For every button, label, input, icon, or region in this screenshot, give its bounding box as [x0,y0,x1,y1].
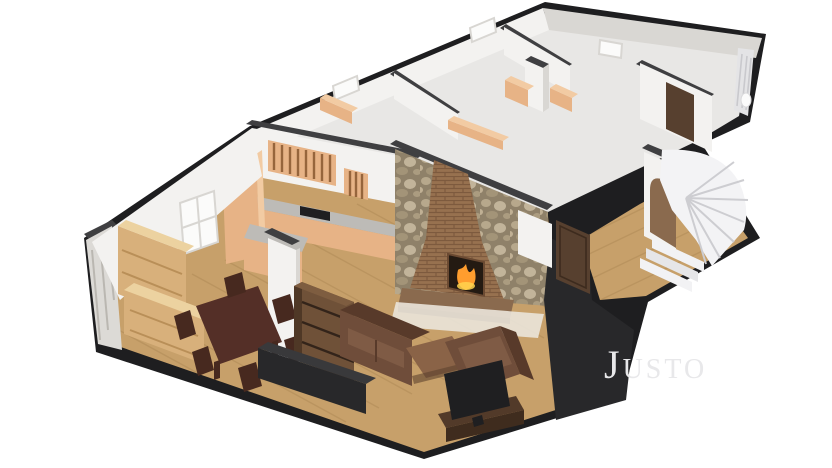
watermark-text: Justo [604,342,707,387]
toilet [741,93,751,107]
floorplan-svg: Justo [0,0,832,468]
floorplan-render: Justo [0,0,832,468]
chimney-stack-side [543,64,549,112]
bookshelf-side [294,282,302,362]
table-leg-1 [214,360,220,380]
bedroom-window-3 [599,40,622,58]
fire-glow [457,282,475,290]
